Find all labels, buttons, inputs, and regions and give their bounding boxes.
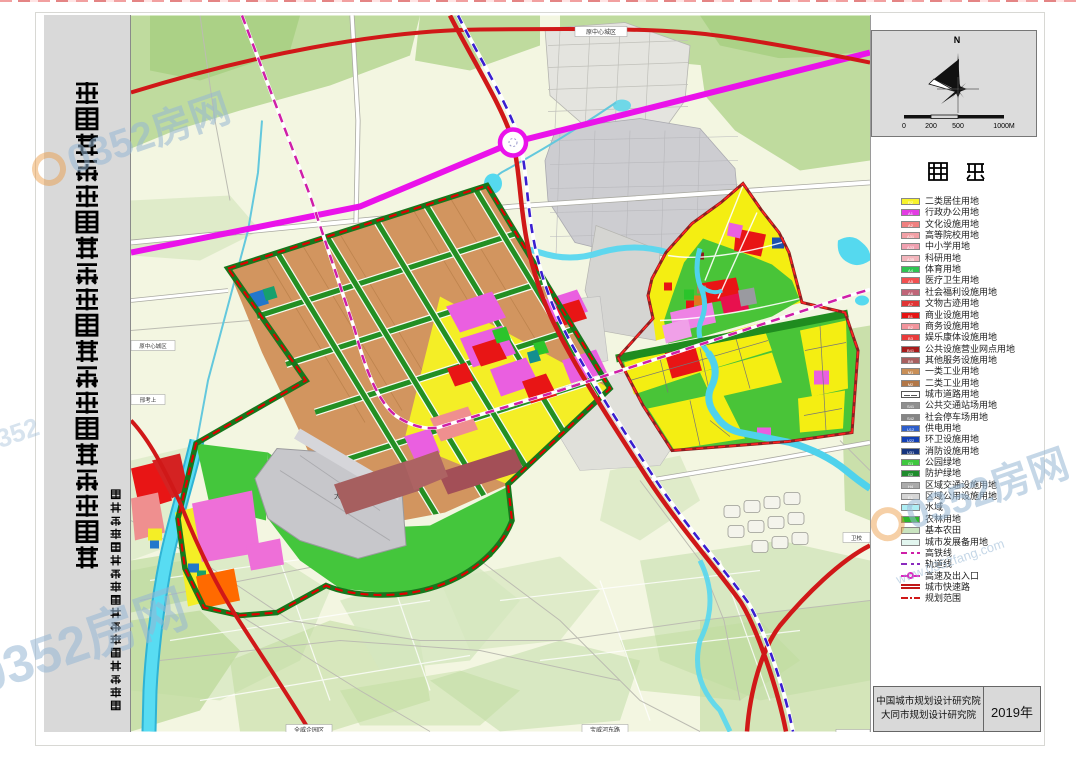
svg-text:原中心城区: 原中心城区 <box>139 342 167 350</box>
svg-text:0: 0 <box>902 123 906 130</box>
svg-text:500: 500 <box>952 123 964 130</box>
svg-text:200: 200 <box>925 123 937 130</box>
svg-text:原中心城区: 原中心城区 <box>586 28 616 36</box>
svg-text:1000M: 1000M <box>993 123 1015 130</box>
svg-text:卫校: 卫校 <box>851 534 863 542</box>
svg-text:邢考上: 邢考上 <box>140 396 157 404</box>
svg-text:N: N <box>954 35 961 45</box>
